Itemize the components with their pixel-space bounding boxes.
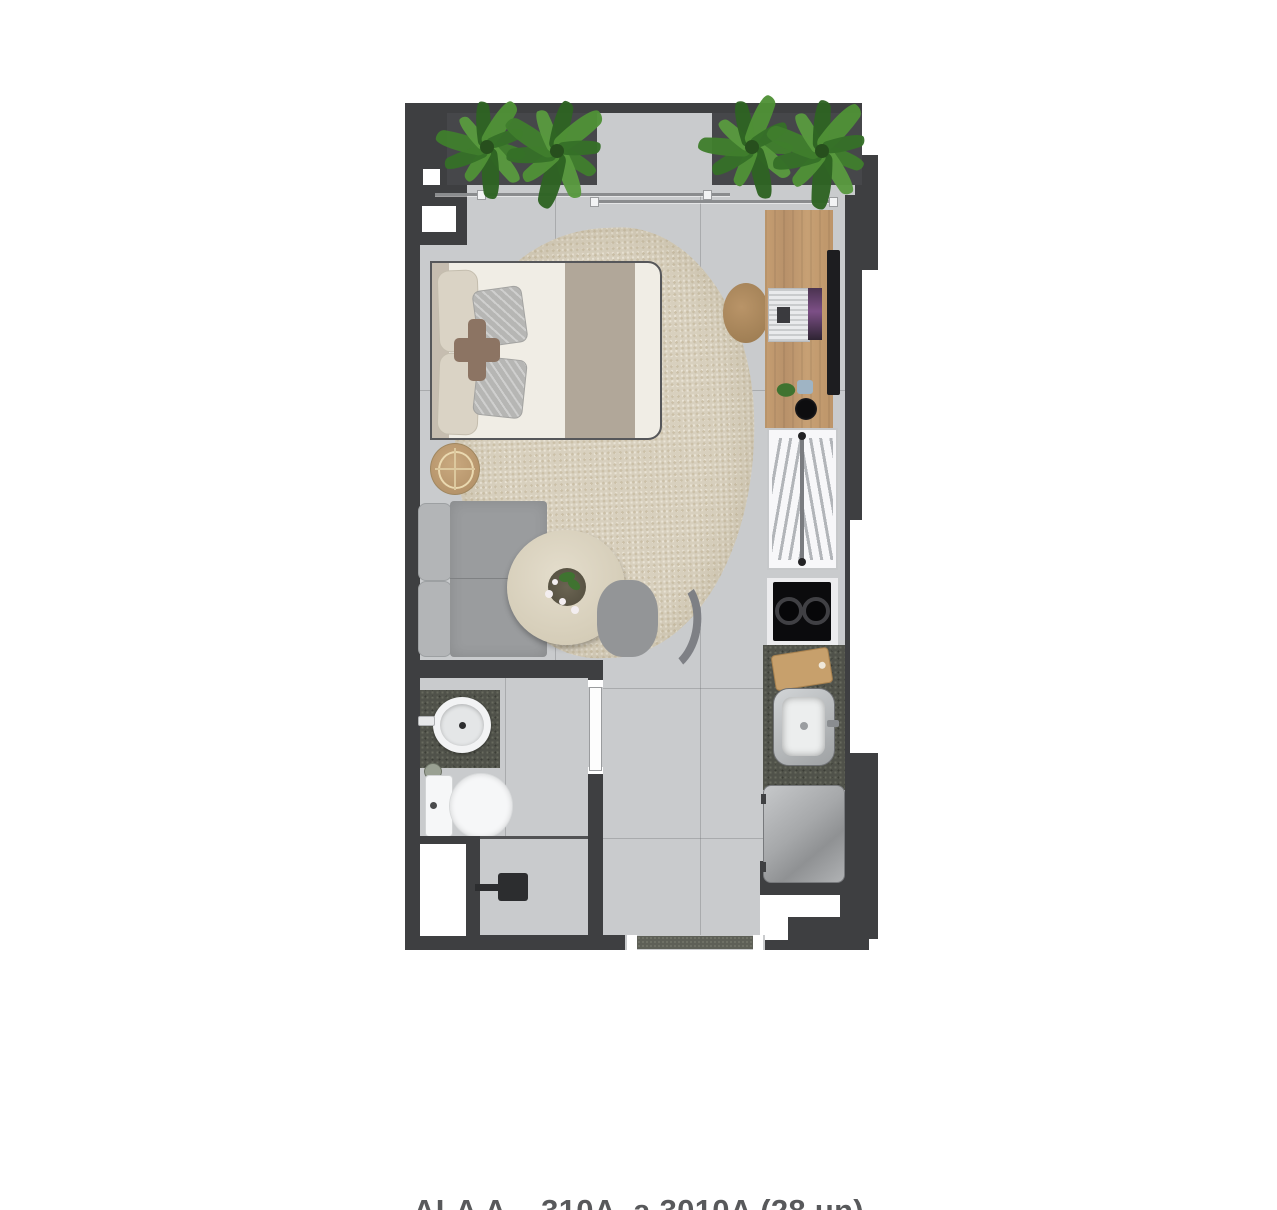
sliding-door-rail-front xyxy=(590,200,838,203)
shaft-window-large xyxy=(422,206,456,232)
monitor xyxy=(827,250,840,395)
entry-jamb xyxy=(627,935,637,950)
washing-machine xyxy=(763,785,845,883)
laptop-keyboard xyxy=(768,288,810,342)
sofa-back-cushion xyxy=(418,581,452,657)
shower-glass-panel xyxy=(420,844,466,936)
burner xyxy=(775,597,803,625)
tile-line xyxy=(603,838,763,839)
page: ALA A – 310A a 3010A (28 un) ALA B – 410… xyxy=(0,0,1277,1210)
floor-plan xyxy=(405,103,878,950)
double-bed xyxy=(432,263,660,438)
plant-center xyxy=(480,140,494,154)
table-flower xyxy=(559,598,566,605)
round-pouf xyxy=(430,443,480,495)
sliding-door-handle xyxy=(590,197,599,207)
sliding-door-handle xyxy=(703,190,712,200)
kitchen-sink xyxy=(773,688,835,766)
basin-faucet xyxy=(418,716,435,726)
caption: ALA A – 310A a 3010A (28 un) ALA B – 410… xyxy=(0,1111,1277,1210)
sliding-door-handle xyxy=(829,197,838,207)
plant-center xyxy=(745,140,759,154)
rack-end-dot xyxy=(798,558,806,566)
plant-center xyxy=(815,144,829,158)
burner xyxy=(802,597,830,625)
shower-arm xyxy=(475,884,499,891)
table-flower xyxy=(552,579,558,585)
round-basin xyxy=(433,697,491,753)
desk-cup xyxy=(795,398,817,420)
kitchen-sink-drain xyxy=(800,722,808,730)
entry-mat xyxy=(637,936,753,949)
laptop-screen xyxy=(808,288,822,340)
washer-hinge xyxy=(761,862,766,872)
bathroom-door xyxy=(589,687,602,771)
shaft-window-small xyxy=(423,169,440,185)
bed-runner xyxy=(565,263,635,438)
tile-line xyxy=(603,688,763,689)
bed-pillow-cross xyxy=(454,338,500,362)
laptop-touchpad xyxy=(777,307,790,323)
toilet-flush xyxy=(430,802,437,809)
desk-chair xyxy=(723,283,769,343)
shower-head xyxy=(498,873,528,901)
washer-hinge xyxy=(761,794,766,804)
rack-rods-right xyxy=(803,438,833,560)
wall-niche xyxy=(760,895,840,917)
basin-drain xyxy=(459,722,466,729)
cooktop xyxy=(773,582,831,641)
door-jamb xyxy=(588,680,603,687)
desk-accessory xyxy=(797,380,813,394)
board-hole xyxy=(818,661,826,669)
rack-center-bar xyxy=(800,435,804,563)
pouf-line xyxy=(454,448,456,490)
sofa-back-cushion xyxy=(418,503,452,581)
toilet-bowl xyxy=(449,773,513,839)
table-flower xyxy=(571,606,579,614)
plant-center xyxy=(550,144,564,158)
bathroom-top-wall xyxy=(405,660,603,678)
entry-jamb xyxy=(753,935,763,950)
pouf-ring xyxy=(438,451,474,489)
rack-rods-left xyxy=(772,438,802,560)
rack-end-dot xyxy=(798,432,806,440)
caption-line-1: ALA A – 310A a 3010A (28 un) xyxy=(0,1191,1277,1210)
kitchen-faucet xyxy=(827,720,839,727)
corner-notch xyxy=(869,939,878,950)
drying-rack xyxy=(767,428,838,570)
table-flower xyxy=(545,590,553,598)
